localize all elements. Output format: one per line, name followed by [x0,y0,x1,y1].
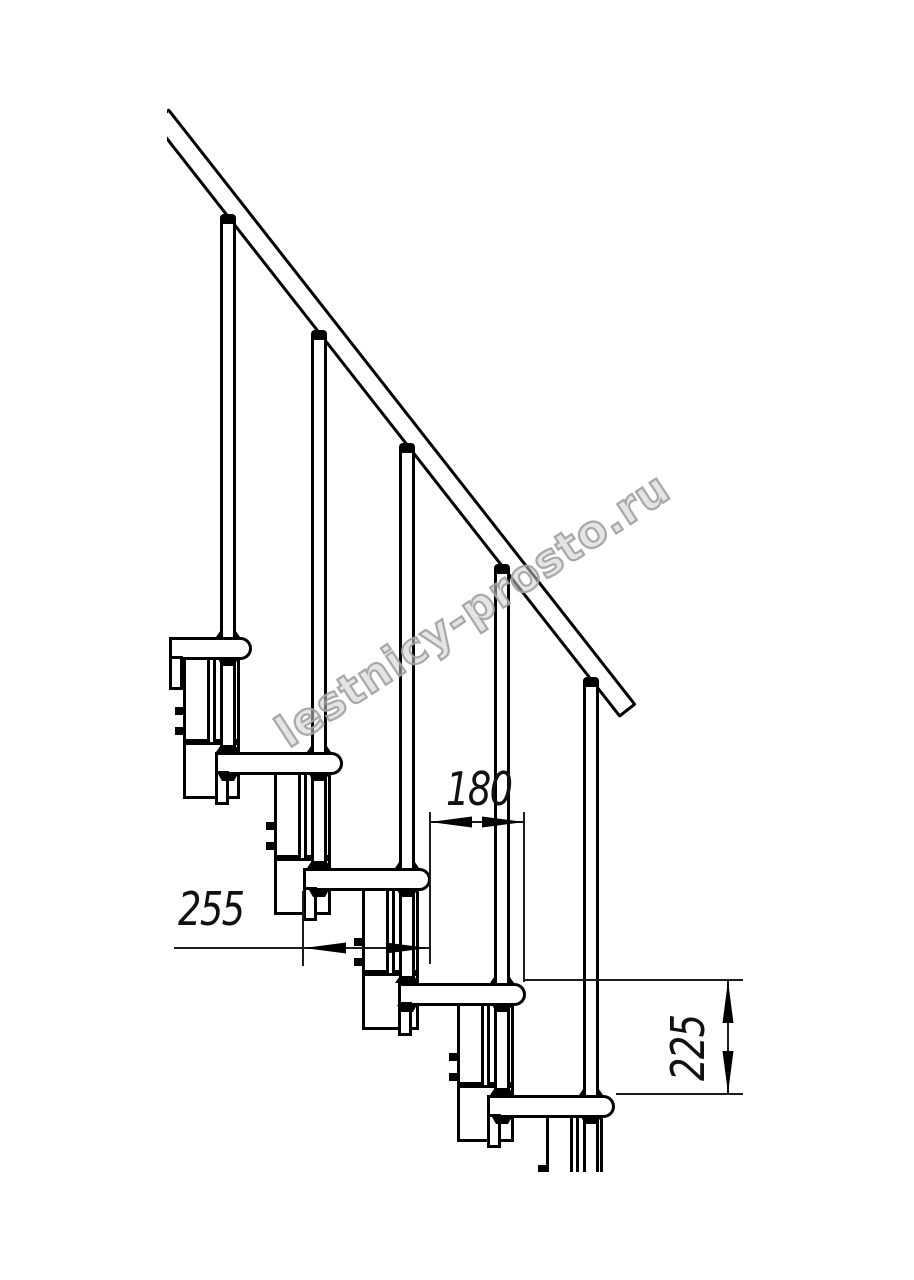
dimension-arrow [722,981,734,1023]
dimension-label-rise: 225 [661,1015,715,1080]
dimension-label-tread-depth: 255 [178,882,243,936]
support-column-upper [274,771,301,858]
extension-line [429,812,431,964]
tread [398,983,526,1006]
bolt [354,938,365,946]
dimension-label-run: 180 [446,762,511,816]
bolt [175,727,186,735]
support-column-upper [457,1002,484,1085]
dimension-label-rise-wrap: 225 [661,980,715,1100]
baluster-cap [583,677,599,687]
bolt [449,1053,460,1061]
bolt [266,822,277,830]
tread-notch [169,656,183,690]
dimension-arrow [722,1051,734,1093]
extension-line [523,812,525,982]
tread [215,752,343,775]
staircase-drawing: 180 255 225 [0,0,914,1172]
baluster-cap [220,214,236,224]
bolt [266,842,277,850]
support-column-upper [183,656,210,742]
dimension-arrow [304,942,346,954]
support-rod [311,772,327,868]
bolt [175,707,186,715]
tread [303,868,431,891]
baluster [220,223,236,637]
drawing-canvas: 180 255 225 lestnicy-prosto.ru [0,0,914,1280]
support-rod [220,657,236,752]
support-rod [399,888,415,983]
bolt [538,1165,549,1172]
dimension-arrow [430,816,472,828]
baluster-cap [399,443,415,453]
bolt [449,1073,460,1081]
support-rod [494,1003,510,1095]
baluster [583,686,599,1095]
support-column-upper [546,1114,573,1172]
baluster-cap [311,330,327,340]
tread [487,1095,615,1118]
support-column-upper [362,887,389,973]
extension-line [302,891,304,966]
bolt [354,958,365,966]
